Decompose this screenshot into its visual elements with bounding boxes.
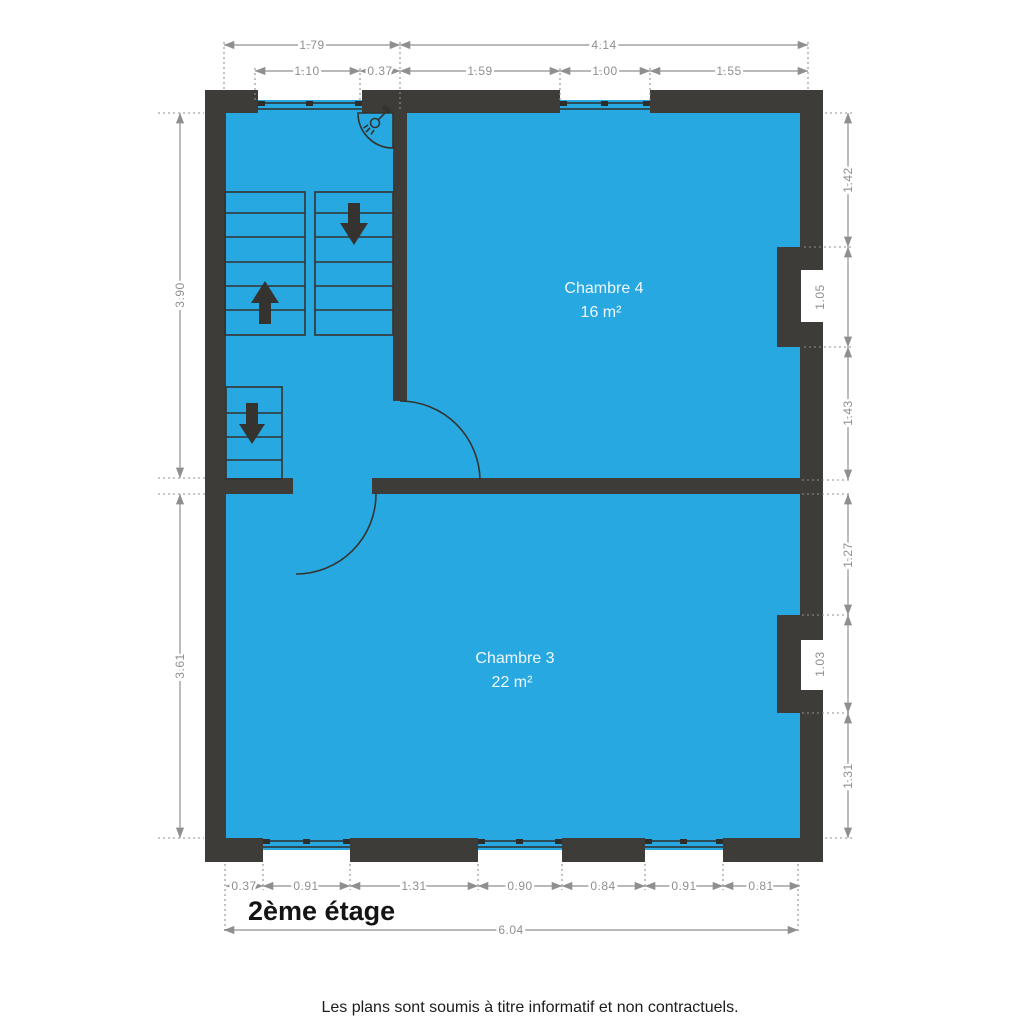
dim-label: 1.31 (841, 763, 855, 788)
window-opening (258, 90, 362, 100)
dim-label: 1.10 (294, 64, 319, 78)
dim-label: 1.55 (716, 64, 741, 78)
room-area-chambre4: 16 m² (581, 304, 623, 321)
window-opening (645, 850, 723, 862)
dim-label: 1.27 (841, 542, 855, 567)
dim-label: 3.90 (173, 282, 187, 307)
dimensions-top: 1.79 4.14 1.10 0.37 1.59 1.00 1.55 (224, 38, 808, 78)
room-area-chambre3: 22 m² (492, 674, 534, 691)
dim-label: 0.37 (231, 879, 256, 893)
window-top-2 (560, 90, 650, 113)
window-opening (478, 850, 562, 862)
dim-label: 1.31 (401, 879, 426, 893)
floor-title: 2ème étage (248, 896, 395, 926)
room-name-chambre3: Chambre 3 (475, 650, 554, 667)
dim-label: 0.84 (590, 879, 615, 893)
dim-label: 1.03 (813, 651, 827, 676)
room-name-chambre4: Chambre 4 (564, 280, 643, 297)
dim-label-total: 6.04 (498, 923, 523, 937)
dim-label: 0.37 (367, 64, 392, 78)
dim-label: 1.42 (841, 167, 855, 192)
window-bottom-3 (645, 838, 723, 862)
dim-label: 4.14 (591, 38, 616, 52)
dim-label: 0.81 (748, 879, 773, 893)
floor-area (226, 113, 800, 838)
dim-label: 1.59 (467, 64, 492, 78)
window-bottom-2 (478, 838, 562, 862)
middle-wall-left (226, 478, 293, 494)
dim-label: 1.05 (813, 284, 827, 309)
window-opening (560, 90, 650, 100)
dim-label: 0.91 (293, 879, 318, 893)
dim-label: 1.79 (299, 38, 324, 52)
hall-divider-wall (393, 113, 407, 401)
dim-label: 1.43 (841, 400, 855, 425)
dimensions-left: 3.90 3.61 (173, 113, 187, 838)
window-top-1 (258, 90, 362, 113)
window-bottom-1 (263, 838, 350, 862)
dim-label: 0.91 (671, 879, 696, 893)
dim-label: 1.00 (592, 64, 617, 78)
middle-wall-right (372, 478, 800, 494)
floorplan-page: 1.79 4.14 1.10 0.37 1.59 1.00 1.55 3.90 … (0, 0, 1024, 1024)
dim-label: 0.90 (507, 879, 532, 893)
disclaimer-text: Les plans sont soumis à titre informatif… (321, 999, 738, 1016)
floorplan-canvas: 1.79 4.14 1.10 0.37 1.59 1.00 1.55 3.90 … (0, 0, 1024, 1024)
window-opening (263, 850, 350, 862)
dim-label: 3.61 (173, 653, 187, 678)
